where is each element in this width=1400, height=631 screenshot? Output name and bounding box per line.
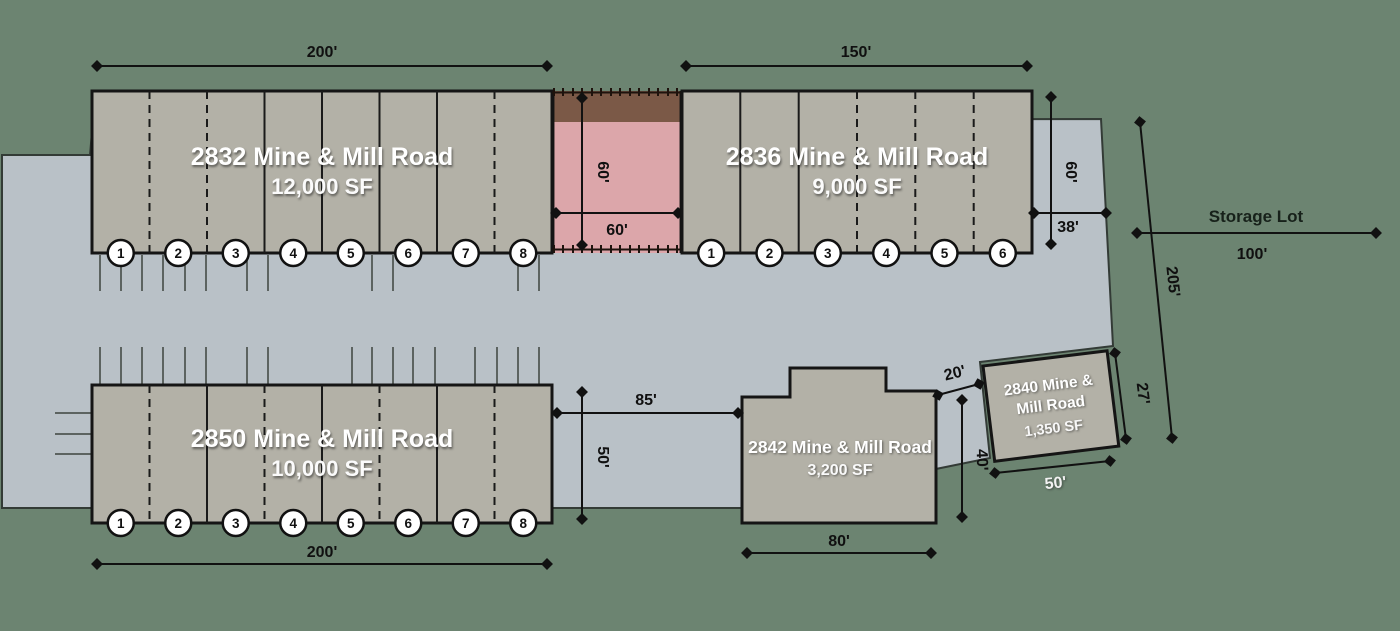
highlighted-unit: 60' 60' [552, 88, 682, 253]
svg-text:50': 50' [594, 446, 611, 468]
svg-text:205': 205' [1162, 265, 1182, 297]
unit-badge: 1 [108, 510, 134, 536]
svg-text:5: 5 [347, 516, 355, 531]
svg-text:150': 150' [841, 44, 872, 61]
svg-text:3: 3 [232, 246, 240, 261]
unit-badge: 7 [453, 510, 479, 536]
svg-text:7: 7 [462, 516, 470, 531]
unit-badge: 3 [815, 240, 841, 266]
svg-text:200': 200' [307, 44, 338, 61]
storage-lot-label: Storage Lot [1209, 207, 1304, 226]
highlight-unit-mezzanine [552, 91, 682, 122]
unit-badge: 8 [510, 240, 536, 266]
svg-text:38': 38' [1057, 219, 1079, 236]
building-2850-name: 2850 Mine & Mill Road [191, 425, 454, 453]
building-2836-name: 2836 Mine & Mill Road [726, 143, 989, 171]
svg-text:5: 5 [347, 246, 355, 261]
unit-badge: 5 [338, 240, 364, 266]
svg-text:27': 27' [1133, 382, 1153, 406]
unit-badge: 4 [873, 240, 899, 266]
unit-badge: 7 [453, 240, 479, 266]
svg-text:6: 6 [999, 246, 1007, 261]
svg-text:60': 60' [1062, 161, 1079, 183]
svg-text:1: 1 [117, 246, 125, 261]
unit-badge: 6 [395, 240, 421, 266]
unit-badge: 6 [395, 510, 421, 536]
svg-text:85': 85' [635, 392, 657, 409]
svg-text:2: 2 [766, 246, 774, 261]
storage-lot-dim: 100' [1237, 246, 1268, 263]
unit-badge: 1 [108, 240, 134, 266]
svg-text:8: 8 [519, 516, 527, 531]
unit-badge: 8 [510, 510, 536, 536]
unit-badge: 4 [280, 510, 306, 536]
svg-text:1: 1 [117, 516, 125, 531]
unit-badge: 3 [223, 240, 249, 266]
unit-badge: 1 [698, 240, 724, 266]
building-2832: 2832 Mine & Mill Road 12,000 SF 1 2 3 4 … [92, 91, 552, 266]
unit-badge: 3 [223, 510, 249, 536]
svg-text:7: 7 [462, 246, 470, 261]
building-2850-size: 10,000 SF [271, 456, 373, 481]
svg-text:3: 3 [232, 516, 240, 531]
site-plan: 2832 Mine & Mill Road 12,000 SF 1 2 3 4 … [0, 0, 1400, 631]
building-2832-name: 2832 Mine & Mill Road [191, 143, 454, 171]
unit-badge: 4 [280, 240, 306, 266]
unit-badge: 2 [165, 240, 191, 266]
unit-badge: 5 [338, 510, 364, 536]
unit-badge: 5 [932, 240, 958, 266]
building-2850: 2850 Mine & Mill Road 10,000 SF 1 2 3 4 … [92, 385, 552, 536]
building-2842-name: 2842 Mine & Mill Road [748, 437, 932, 457]
unit-badge: 6 [990, 240, 1016, 266]
unit-badge: 2 [165, 510, 191, 536]
svg-text:200': 200' [307, 544, 338, 561]
building-2840: 2840 Mine & Mill Road 1,350 SF [983, 351, 1119, 462]
svg-text:60': 60' [594, 161, 611, 183]
building-2832-size: 12,000 SF [271, 174, 373, 199]
svg-text:4: 4 [289, 246, 297, 261]
building-2836: 2836 Mine & Mill Road 9,000 SF 1 2 3 4 5… [682, 91, 1032, 266]
svg-text:1: 1 [707, 246, 715, 261]
svg-text:4: 4 [289, 516, 297, 531]
svg-text:3: 3 [824, 246, 832, 261]
unit-badge: 2 [757, 240, 783, 266]
building-2842-size: 3,200 SF [808, 462, 873, 479]
svg-text:80': 80' [828, 533, 850, 550]
svg-text:40': 40' [973, 449, 991, 471]
svg-text:4: 4 [882, 246, 890, 261]
svg-text:2: 2 [174, 246, 182, 261]
building-2836-size: 9,000 SF [812, 174, 901, 199]
svg-text:8: 8 [519, 246, 527, 261]
svg-text:60': 60' [606, 222, 628, 239]
svg-text:6: 6 [404, 516, 412, 531]
svg-text:50': 50' [1044, 474, 1067, 493]
svg-text:2: 2 [174, 516, 182, 531]
svg-text:6: 6 [404, 246, 412, 261]
svg-text:5: 5 [941, 246, 949, 261]
